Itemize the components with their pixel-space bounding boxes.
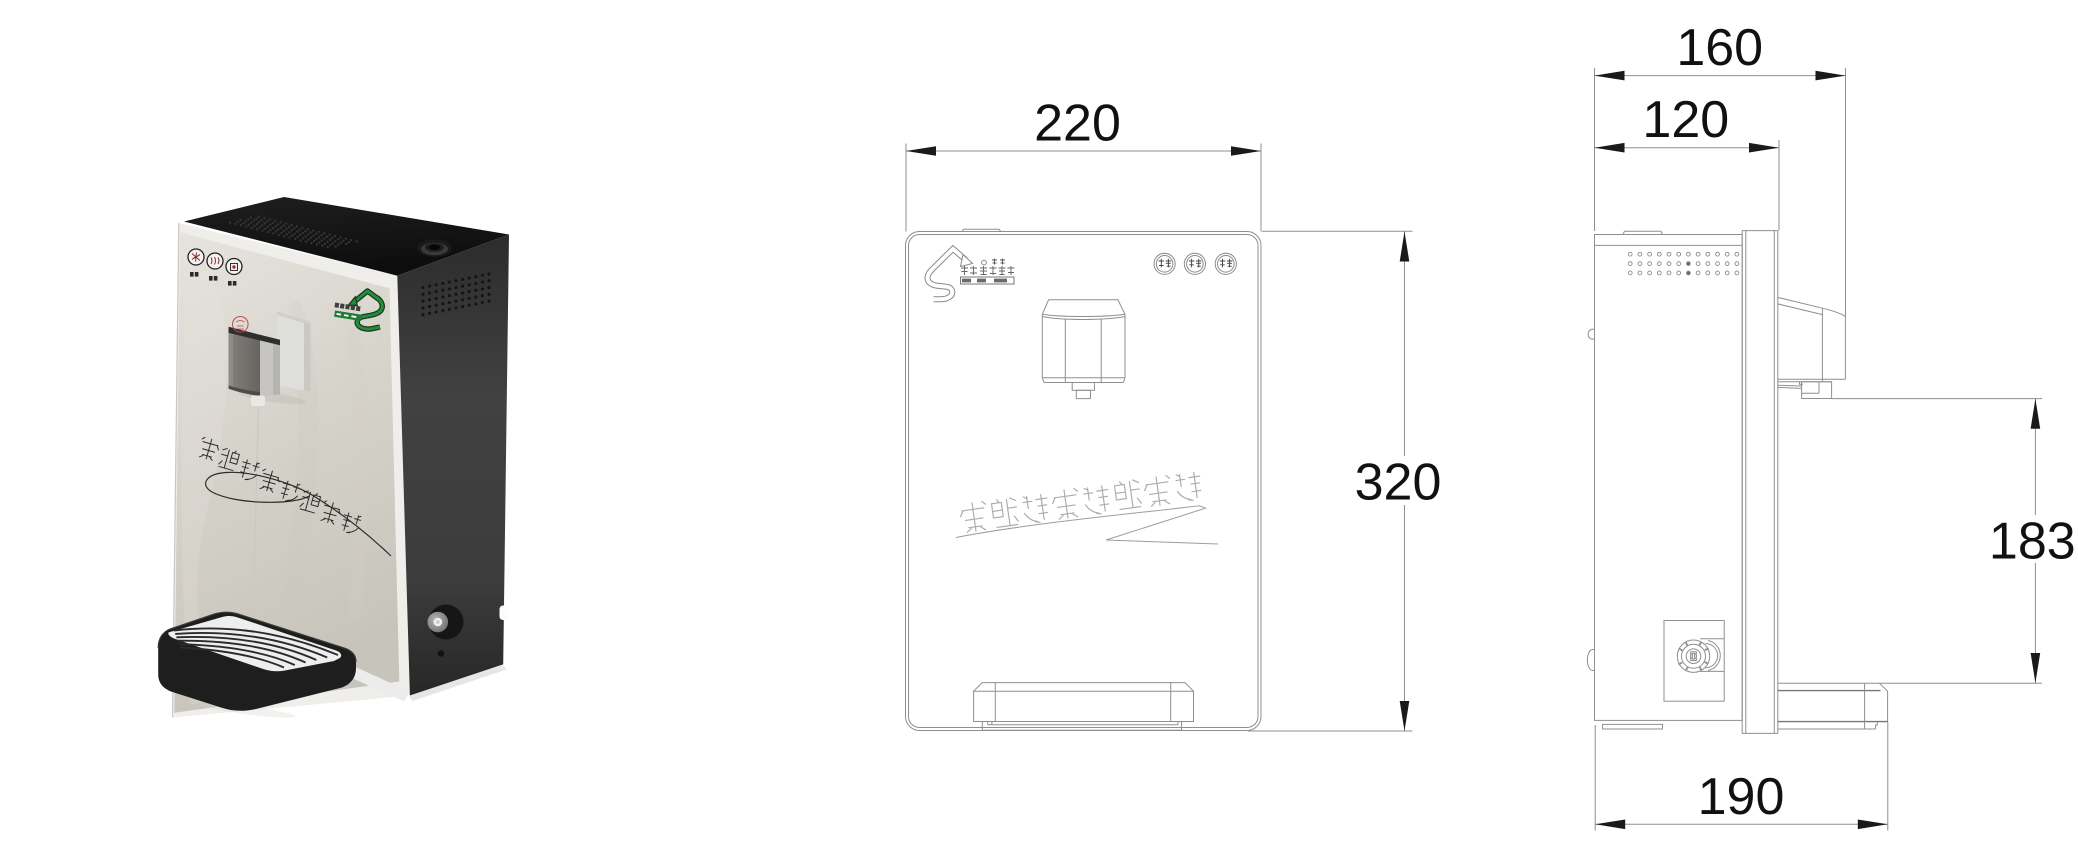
svg-text:320: 320 bbox=[1355, 453, 1442, 511]
svg-text:183: 183 bbox=[1989, 513, 2076, 571]
svg-text:160: 160 bbox=[1676, 19, 1763, 77]
svg-text:190: 190 bbox=[1698, 768, 1785, 826]
svg-text:220: 220 bbox=[1034, 95, 1121, 153]
svg-text:120: 120 bbox=[1642, 91, 1729, 149]
